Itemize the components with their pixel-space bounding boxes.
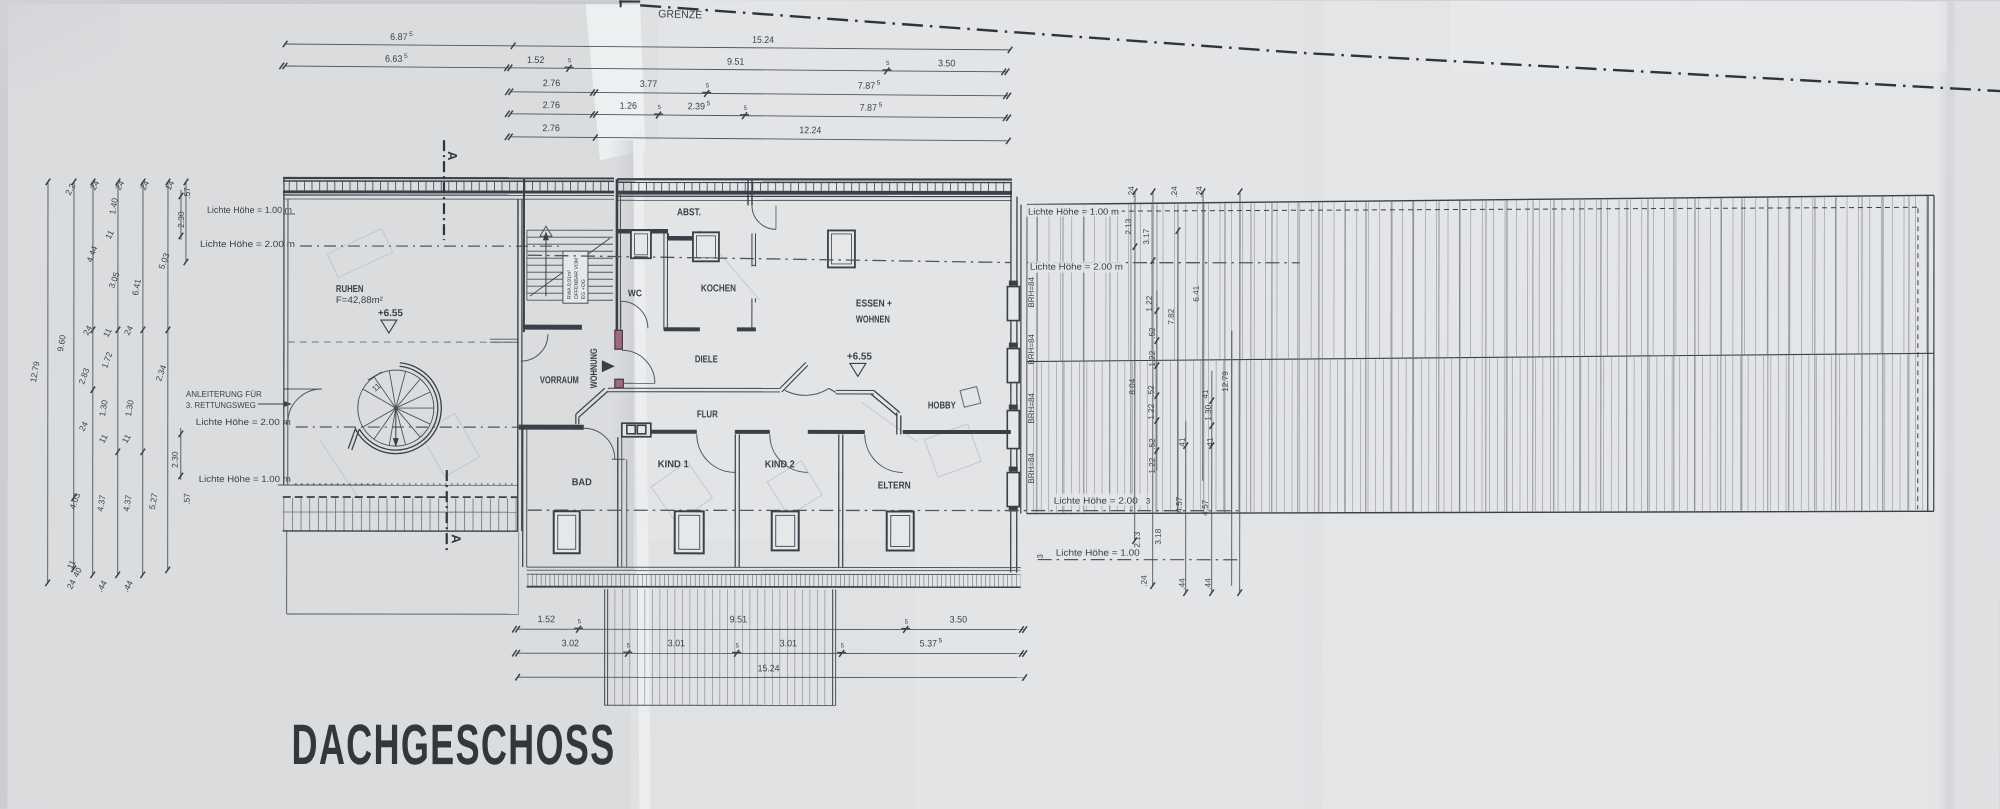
svg-text:2.39: 2.39 [688, 101, 705, 112]
svg-text:KIND 2: KIND 2 [765, 459, 795, 470]
svg-text:Lichte Höhe = 2.00 m: Lichte Höhe = 2.00 m [1030, 262, 1123, 272]
svg-text:BRH=84: BRH=84 [1027, 453, 1036, 484]
svg-text:ELTERN: ELTERN [878, 480, 911, 491]
svg-text:4.57: 4.57 [1175, 496, 1184, 512]
svg-text:1.52: 1.52 [538, 614, 555, 625]
svg-text:.52: .52 [1148, 327, 1157, 339]
svg-text:4.57: 4.57 [1201, 499, 1210, 515]
svg-text:6.41: 6.41 [1192, 285, 1201, 301]
svg-text:5: 5 [877, 80, 881, 87]
svg-text:3: 3 [1036, 554, 1045, 559]
svg-text:FLUR: FLUR [697, 409, 719, 420]
svg-text:5: 5 [939, 638, 943, 645]
svg-text:3.50: 3.50 [938, 58, 955, 69]
svg-text:.24: .24 [1127, 186, 1136, 198]
svg-text:BRH=84: BRH=84 [1027, 334, 1036, 365]
svg-text:Lichte Höhe = 1.00 m: Lichte Höhe = 1.00 m [207, 205, 292, 215]
svg-text:5.37: 5.37 [920, 638, 937, 649]
svg-text:.52: .52 [1148, 438, 1157, 450]
svg-text:2.76: 2.76 [543, 100, 560, 111]
svg-text:6.87: 6.87 [390, 32, 407, 43]
svg-text:2.76: 2.76 [542, 123, 559, 134]
svg-text:12.24: 12.24 [799, 125, 821, 136]
svg-text:1.22: 1.22 [1148, 350, 1157, 366]
svg-text:Lichte Höhe = 1.00: Lichte Höhe = 1.00 [1056, 548, 1140, 558]
svg-text:RWA 0,91m²: RWA 0,91m² [567, 270, 573, 299]
svg-text:15.24: 15.24 [758, 663, 780, 674]
svg-text:8.04: 8.04 [1128, 378, 1137, 394]
svg-text:41: 41 [1201, 389, 1210, 399]
svg-text:VORRAUM: VORRAUM [540, 375, 579, 386]
svg-text:7.87: 7.87 [858, 81, 875, 92]
svg-text:5: 5 [404, 53, 408, 60]
svg-text:2.13: 2.13 [1133, 531, 1142, 547]
svg-text:ESSEN +: ESSEN + [856, 298, 892, 309]
svg-text:3.17: 3.17 [1142, 228, 1151, 244]
svg-text:A: A [445, 151, 460, 161]
svg-text:1.22: 1.22 [1148, 457, 1157, 473]
svg-text:3.50: 3.50 [950, 615, 967, 626]
svg-text:41: 41 [1206, 437, 1215, 447]
svg-text:3.02: 3.02 [562, 638, 579, 649]
svg-text:12.79: 12.79 [1221, 371, 1230, 392]
svg-text:GRENZE: GRENZE [658, 8, 702, 21]
svg-text:WC: WC [628, 288, 642, 299]
svg-text:.24: .24 [1195, 186, 1204, 198]
svg-text:DACHGESCHOSS: DACHGESCHOSS [292, 713, 616, 777]
svg-text:7.82: 7.82 [1167, 308, 1176, 324]
svg-text:.24: .24 [1170, 186, 1179, 198]
svg-text:.44: .44 [1204, 578, 1213, 590]
svg-text:KIND 1: KIND 1 [658, 459, 689, 470]
svg-text:A: A [449, 534, 464, 544]
svg-text:Lichte Höhe = 1.00 m: Lichte Höhe = 1.00 m [1028, 207, 1119, 217]
svg-text:2.30: 2.30 [170, 451, 180, 468]
svg-text:1.30: 1.30 [1204, 404, 1213, 420]
svg-text:ANLEITERUNG FÜR: ANLEITERUNG FÜR [186, 389, 262, 399]
svg-text:5: 5 [409, 31, 413, 38]
svg-text:1.26: 1.26 [620, 101, 637, 112]
svg-text:1.22: 1.22 [1147, 403, 1156, 419]
svg-text:2.76: 2.76 [543, 78, 560, 89]
svg-text:DIELE: DIELE [695, 354, 718, 365]
svg-text:6.63: 6.63 [385, 54, 402, 65]
svg-text:.44: .44 [1178, 578, 1187, 590]
svg-text:3.77: 3.77 [640, 79, 657, 90]
svg-text:1.22: 1.22 [1145, 295, 1154, 311]
svg-text:3.01: 3.01 [668, 638, 685, 649]
svg-text:HOBBY: HOBBY [928, 400, 956, 411]
svg-text:BRH=84: BRH=84 [1027, 393, 1036, 424]
svg-text:Lichte Höhe = 2.00 m: Lichte Höhe = 2.00 m [196, 417, 291, 427]
svg-text:Lichte Höhe = 2.00: Lichte Höhe = 2.00 [1054, 496, 1138, 506]
svg-text:+6.55: +6.55 [847, 351, 872, 362]
svg-text:WOHNEN: WOHNEN [856, 314, 890, 325]
svg-text:9.51: 9.51 [730, 614, 747, 625]
svg-text:.52: .52 [1147, 385, 1156, 397]
svg-text:BRH=84: BRH=84 [1027, 277, 1036, 308]
svg-text:2.13: 2.13 [1124, 218, 1133, 234]
svg-text:1.52: 1.52 [527, 55, 544, 66]
svg-text:.57: .57 [182, 493, 192, 505]
svg-text:15.24: 15.24 [752, 35, 774, 46]
svg-text:5: 5 [879, 102, 883, 109]
svg-text:BAD: BAD [572, 477, 592, 488]
svg-text:7.87: 7.87 [860, 103, 877, 114]
svg-text:ABST.: ABST. [677, 207, 701, 218]
svg-text:F=42,88m²: F=42,88m² [336, 295, 383, 306]
svg-text:3: 3 [1146, 497, 1151, 506]
svg-text:5: 5 [707, 100, 711, 107]
svg-text:+6.55: +6.55 [378, 308, 403, 319]
svg-text:9.51: 9.51 [727, 57, 744, 68]
svg-text:3. RETTUNGSWEG: 3. RETTUNGSWEG [186, 400, 256, 410]
svg-text:WOHNUNG: WOHNUNG [589, 348, 600, 388]
svg-text:OFFENBAR VOM: OFFENBAR VOM [574, 258, 580, 300]
svg-text:KOCHEN: KOCHEN [701, 283, 736, 294]
svg-text:41: 41 [1178, 437, 1187, 447]
svg-text:3.18: 3.18 [1154, 528, 1163, 544]
svg-text:.24: .24 [1140, 575, 1149, 587]
svg-text:Lichte Höhe = 1.00 m: Lichte Höhe = 1.00 m [199, 474, 291, 484]
svg-text:3.01: 3.01 [780, 638, 797, 649]
svg-text:RUHEN: RUHEN [336, 284, 364, 295]
svg-text:EG +OG: EG +OG [581, 279, 587, 299]
svg-text:Lichte Höhe = 2.00 m: Lichte Höhe = 2.00 m [200, 239, 295, 249]
